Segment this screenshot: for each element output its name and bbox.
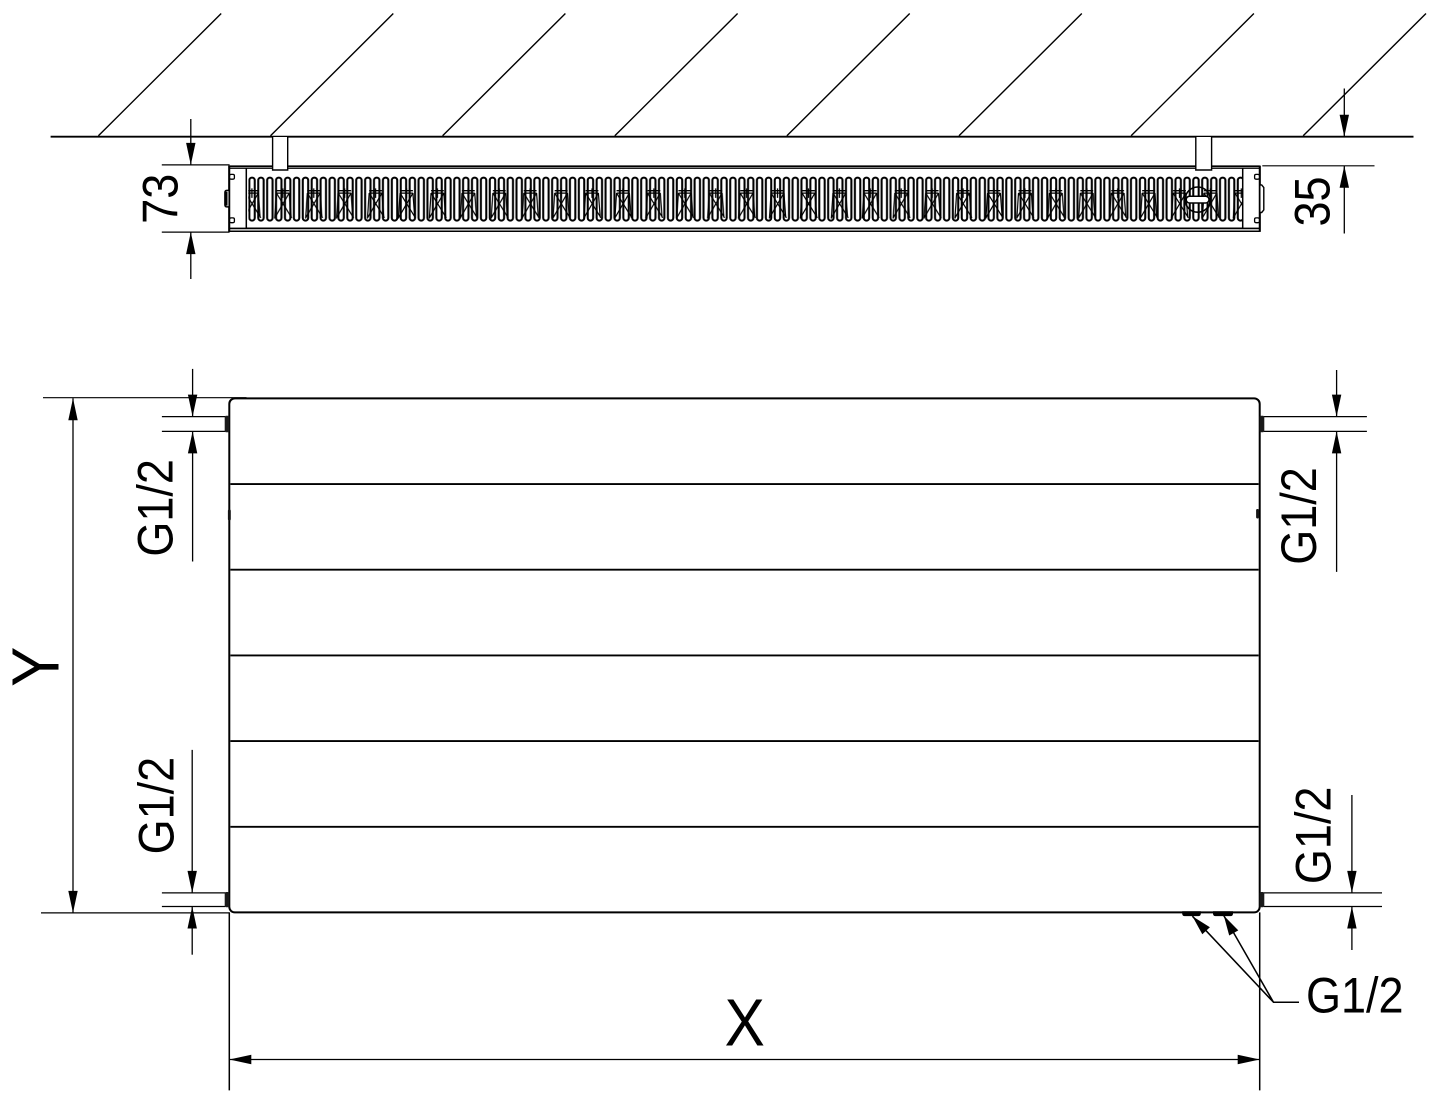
svg-text:G1/2: G1/2 xyxy=(1306,968,1404,1024)
svg-text:G1/2: G1/2 xyxy=(129,757,185,855)
svg-text:X: X xyxy=(725,984,765,1060)
svg-text:Y: Y xyxy=(0,647,73,687)
svg-text:35: 35 xyxy=(1285,176,1341,226)
svg-text:G1/2: G1/2 xyxy=(128,459,184,557)
svg-text:G1/2: G1/2 xyxy=(1272,467,1328,565)
svg-text:73: 73 xyxy=(133,174,189,224)
svg-text:G1/2: G1/2 xyxy=(1286,787,1342,885)
